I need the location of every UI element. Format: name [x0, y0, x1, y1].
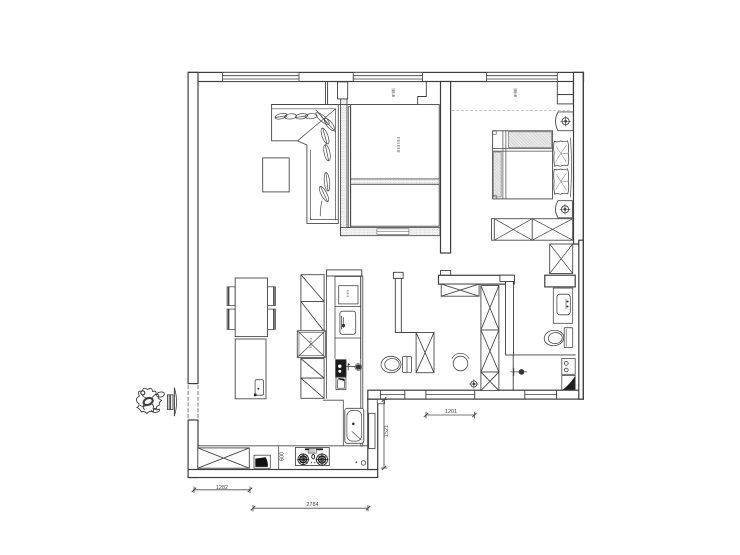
svg-text:600: 600 — [280, 452, 286, 461]
svg-text:1201: 1201 — [445, 409, 457, 415]
svg-text:2784: 2784 — [306, 502, 318, 508]
svg-text:1521: 1521 — [384, 425, 390, 437]
svg-text:1282: 1282 — [216, 485, 228, 491]
